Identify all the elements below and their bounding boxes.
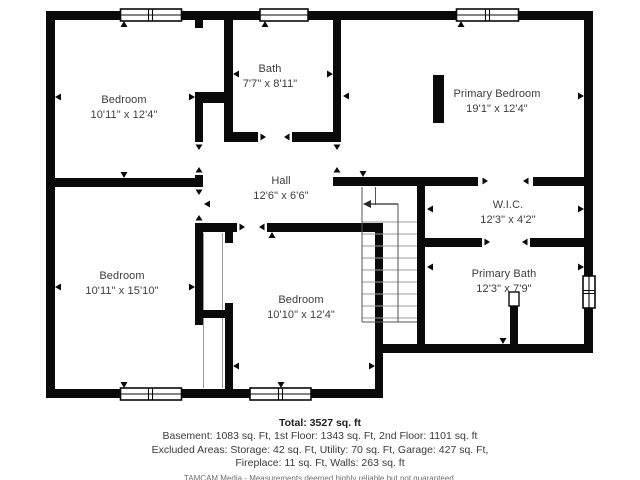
- room-name: Bedroom: [85, 269, 158, 284]
- window-primary-bath: [583, 276, 595, 308]
- wall-bedroom3-right: [195, 223, 203, 325]
- room-label-bedroom-bottom-left: Bedroom 10'11" x 15'10": [85, 269, 158, 299]
- room-dims: 10'11" x 12'4": [90, 108, 157, 123]
- room-label-bedroom-top-left: Bedroom 10'11" x 12'4": [90, 93, 157, 123]
- room-name: Bedroom: [267, 293, 335, 308]
- room-name: W.I.C.: [480, 198, 535, 213]
- area-summary: Total: 3527 sq. ft Basement: 1083 sq. Ft…: [0, 417, 640, 480]
- excluded-areas-text-2: Fireplace: 11 sq. Ft, Walls: 263 sq. ft: [0, 457, 640, 471]
- wall-bath-right: [333, 11, 341, 142]
- room-name: Bath: [243, 62, 298, 77]
- room-dims: 12'6" x 6'6": [253, 189, 308, 204]
- wall-bath-door-stub: [510, 306, 518, 344]
- room-label-wic: W.I.C. 12'3" x 4'2": [480, 198, 535, 228]
- wall-stub-top: [195, 11, 203, 28]
- wall-primary-bottom-right: [533, 177, 593, 186]
- room-label-bedroom-bottom-middle: Bedroom 10'10" x 12'4": [267, 293, 335, 323]
- room-label-primary-bath: Primary Bath 12'3" x 7'9": [472, 267, 537, 297]
- total-area-text: Total: 3527 sq. ft: [0, 417, 640, 430]
- fireplace-block: [433, 75, 444, 123]
- room-label-hall: Hall 12'6" x 6'6": [253, 174, 308, 204]
- excluded-areas-text: Excluded Areas: Storage: 42 sq. Ft, Util…: [0, 444, 640, 458]
- wall-bedroom4-top-left: [195, 223, 237, 232]
- floor-plan-drawing: [0, 0, 640, 480]
- wall-bath-bottom-left: [224, 132, 258, 142]
- wall-bedroom3-top: [46, 178, 200, 187]
- floor-areas-text: Basement: 1083 sq. Ft, 1st Floor: 1343 s…: [0, 430, 640, 444]
- wall-bath-left: [224, 11, 233, 142]
- wall-stairwell-right: [417, 177, 425, 344]
- wall-wic-bottom-left: [417, 238, 482, 247]
- window-bedroom1: [121, 9, 182, 21]
- room-name: Bedroom: [90, 93, 157, 108]
- branding-disclaimer: TAMCAM Media - Measurements deemed highl…: [0, 473, 640, 480]
- room-name: Hall: [253, 174, 308, 189]
- wall-closet-stub-bottom: [195, 310, 228, 318]
- window-bedroom4: [250, 388, 311, 400]
- staircase: [362, 187, 417, 322]
- wall-exterior-left: [46, 11, 55, 398]
- room-name: Primary Bath: [472, 267, 537, 282]
- room-name: Primary Bedroom: [453, 87, 540, 102]
- room-label-bath: Bath 7'7" x 8'11": [243, 62, 298, 92]
- wall-bedroom4-right: [375, 223, 383, 398]
- room-dims: 19'1" x 12'4": [453, 102, 540, 117]
- wall-exterior-bottom-right: [375, 344, 593, 353]
- wall-bath-bottom-right: [292, 132, 341, 142]
- wall-exterior-bottom-left: [46, 389, 383, 398]
- room-dims: 10'11" x 15'10": [85, 284, 158, 299]
- room-dims: 7'7" x 8'11": [243, 77, 298, 92]
- room-dims: 10'10" x 12'4": [267, 308, 335, 323]
- wall-wic-bottom-right: [530, 238, 593, 247]
- wall-bedroom4-top-right: [267, 223, 383, 232]
- window-bath: [260, 9, 308, 21]
- wall-alcove-stub: [195, 92, 233, 103]
- room-dims: 12'3" x 4'2": [480, 213, 535, 228]
- wall-primary-bottom-left: [333, 177, 478, 186]
- window-primary-bedroom: [457, 9, 519, 21]
- window-bedroom3: [121, 388, 182, 400]
- room-dims: 12'3" x 7'9": [472, 282, 537, 297]
- floor-plan-page: Bedroom 10'11" x 12'4" Bath 7'7" x 8'11"…: [0, 0, 640, 480]
- stair-direction-arrow: [363, 200, 398, 208]
- room-label-primary-bedroom: Primary Bedroom 19'1" x 12'4": [453, 87, 540, 117]
